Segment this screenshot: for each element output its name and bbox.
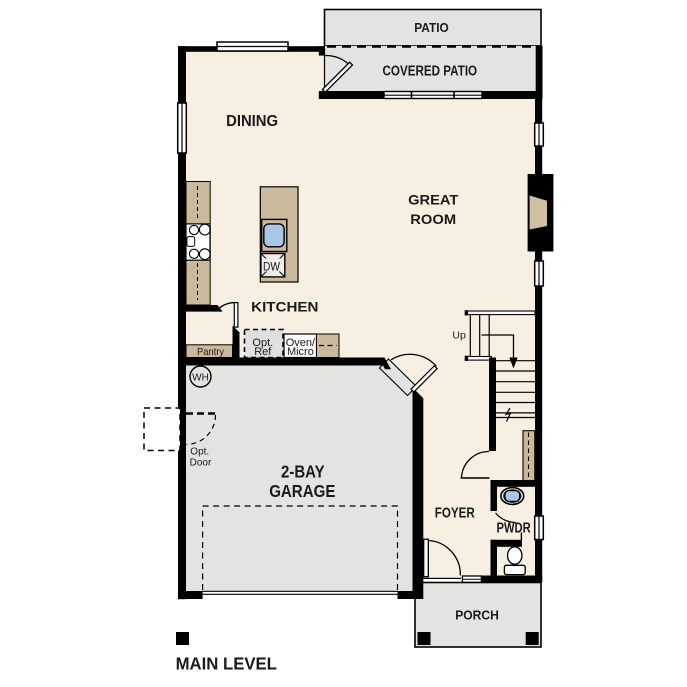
svg-text:GARAGE: GARAGE — [269, 481, 335, 501]
svg-text:COVERED PATIO: COVERED PATIO — [383, 64, 478, 80]
svg-text:FOYER: FOYER — [435, 505, 475, 522]
svg-text:DW: DW — [263, 259, 281, 273]
svg-text:Opt.: Opt. — [190, 447, 209, 458]
svg-text:Micro: Micro — [287, 346, 314, 358]
svg-text:Up: Up — [452, 330, 466, 342]
svg-text:GREAT: GREAT — [408, 193, 459, 208]
svg-text:PATIO: PATIO — [414, 20, 449, 35]
svg-text:ROOM: ROOM — [410, 212, 456, 227]
svg-text:KITCHEN: KITCHEN — [251, 299, 318, 315]
svg-text:2-BAY: 2-BAY — [281, 462, 325, 482]
svg-text:DINING: DINING — [226, 113, 278, 130]
svg-text:PORCH: PORCH — [455, 607, 499, 622]
svg-text:Ref: Ref — [254, 346, 272, 358]
svg-text:MAIN LEVEL: MAIN LEVEL — [176, 653, 278, 673]
svg-text:WH: WH — [192, 373, 209, 384]
svg-text:PWDR: PWDR — [497, 520, 531, 537]
svg-text:Pantry: Pantry — [197, 346, 225, 358]
svg-text:Door: Door — [190, 458, 212, 469]
